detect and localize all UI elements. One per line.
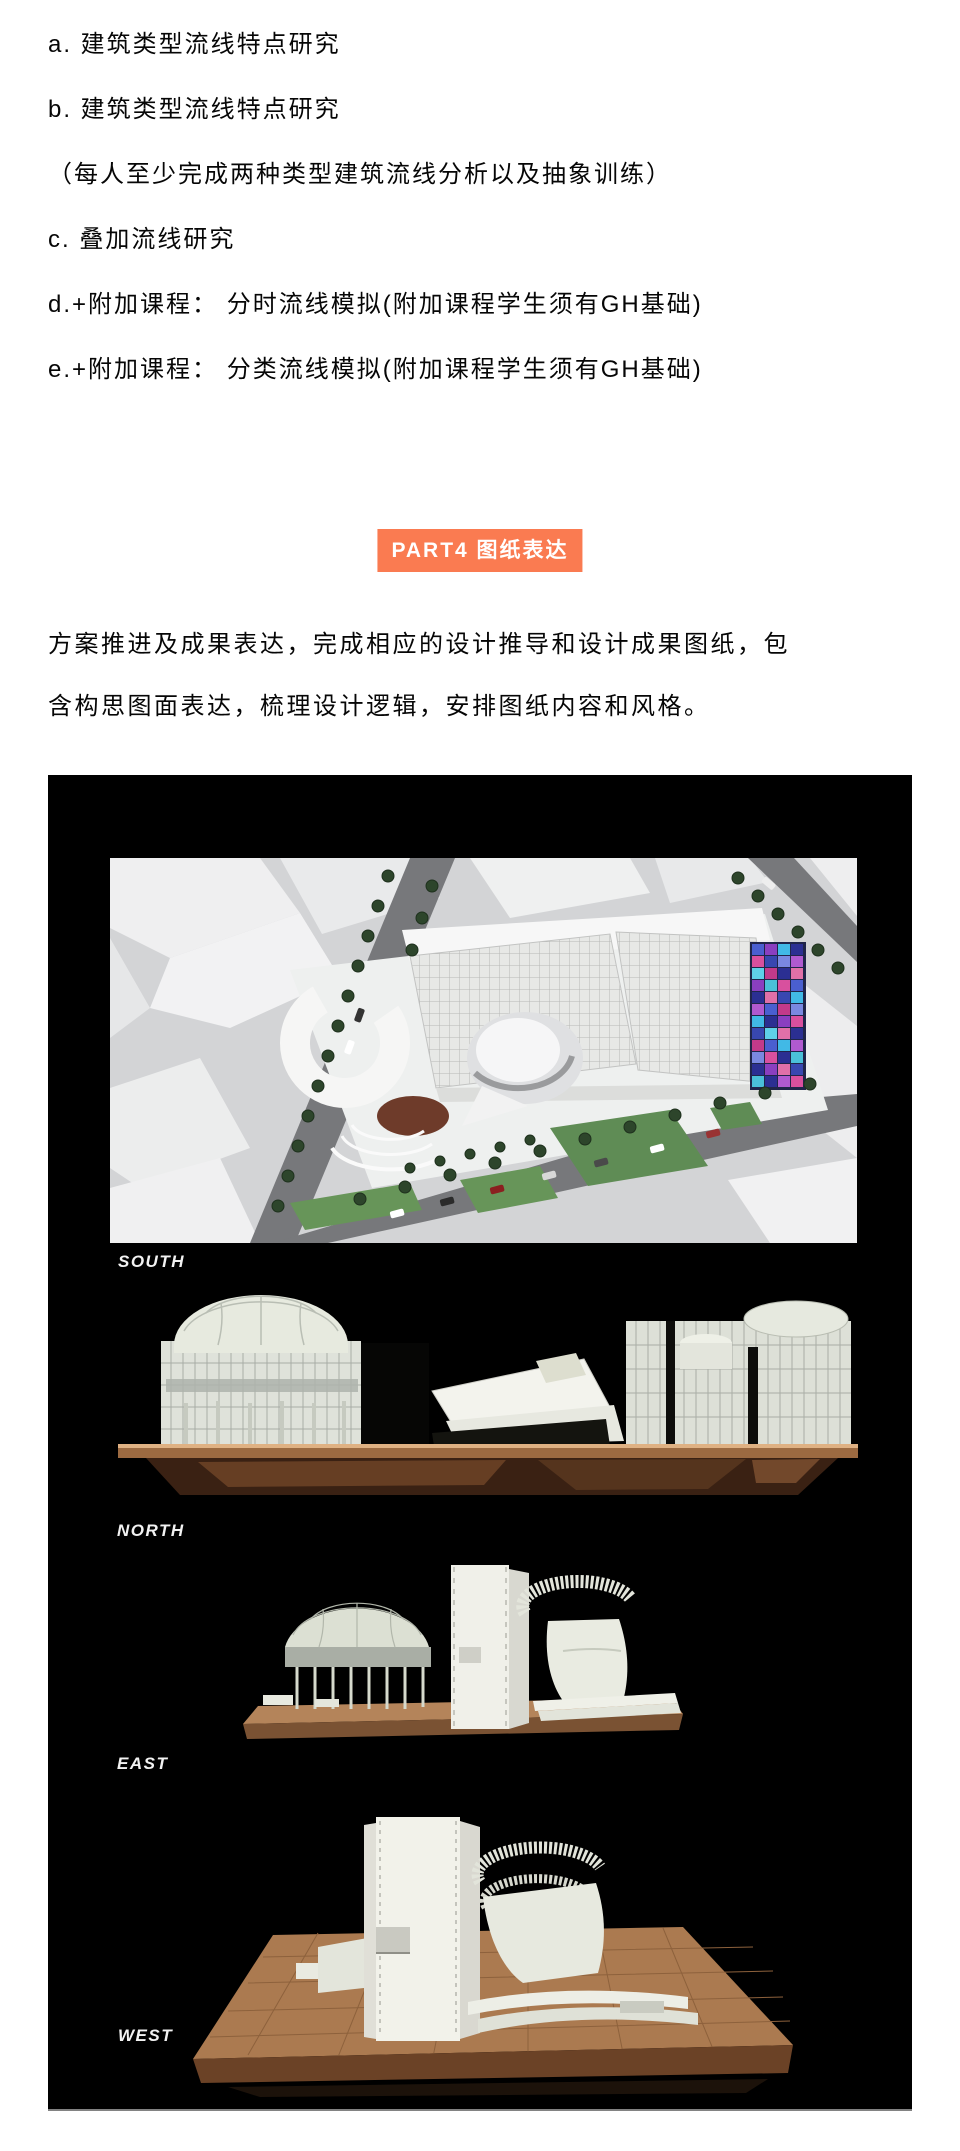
- north-copper-base: [118, 1444, 858, 1495]
- label-east: EAST: [117, 1754, 168, 1774]
- east-buildings: [263, 1565, 681, 1729]
- list-item-b: b. 建筑类型流线特点研究: [48, 94, 341, 126]
- led-facade: [750, 942, 806, 1090]
- west-wood-base: [193, 1927, 793, 2097]
- model-views-figure: SOUTH: [48, 775, 912, 2111]
- photo-east-model[interactable]: [223, 1551, 703, 1756]
- list-item-e: e.+附加课程： 分类流线模拟(附加课程学生须有GH基础): [48, 354, 703, 386]
- paragraph-line: 含构思图面表达，梳理设计逻辑，安排图纸内容和风格。: [48, 691, 711, 723]
- list-item-c: c. 叠加流线研究: [48, 224, 235, 256]
- photo-north-model[interactable]: [106, 1283, 866, 1515]
- label-north: NORTH: [117, 1521, 185, 1541]
- aerial-round-plaza: [377, 1096, 449, 1136]
- list-item-d: d.+附加课程： 分时流线模拟(附加课程学生须有GH基础): [48, 289, 703, 321]
- label-south: SOUTH: [118, 1252, 185, 1272]
- paragraph-line: 方案推进及成果表达，完成相应的设计推导和设计成果图纸，包: [48, 629, 790, 661]
- label-west: WEST: [118, 2026, 173, 2046]
- photo-south-aerial[interactable]: [110, 858, 857, 1243]
- north-buildings: [161, 1295, 851, 1446]
- list-item-a: a. 建筑类型流线特点研究: [48, 29, 341, 61]
- article-page: a. 建筑类型流线特点研究 b. 建筑类型流线特点研究 （每人至少完成两种类型建…: [0, 0, 960, 2151]
- part4-section-badge: PART4 图纸表达: [377, 529, 582, 572]
- photo-west-model[interactable]: [168, 1787, 808, 2097]
- list-item-note: （每人至少完成两种类型建筑流线分析以及抽象训练）: [48, 159, 672, 191]
